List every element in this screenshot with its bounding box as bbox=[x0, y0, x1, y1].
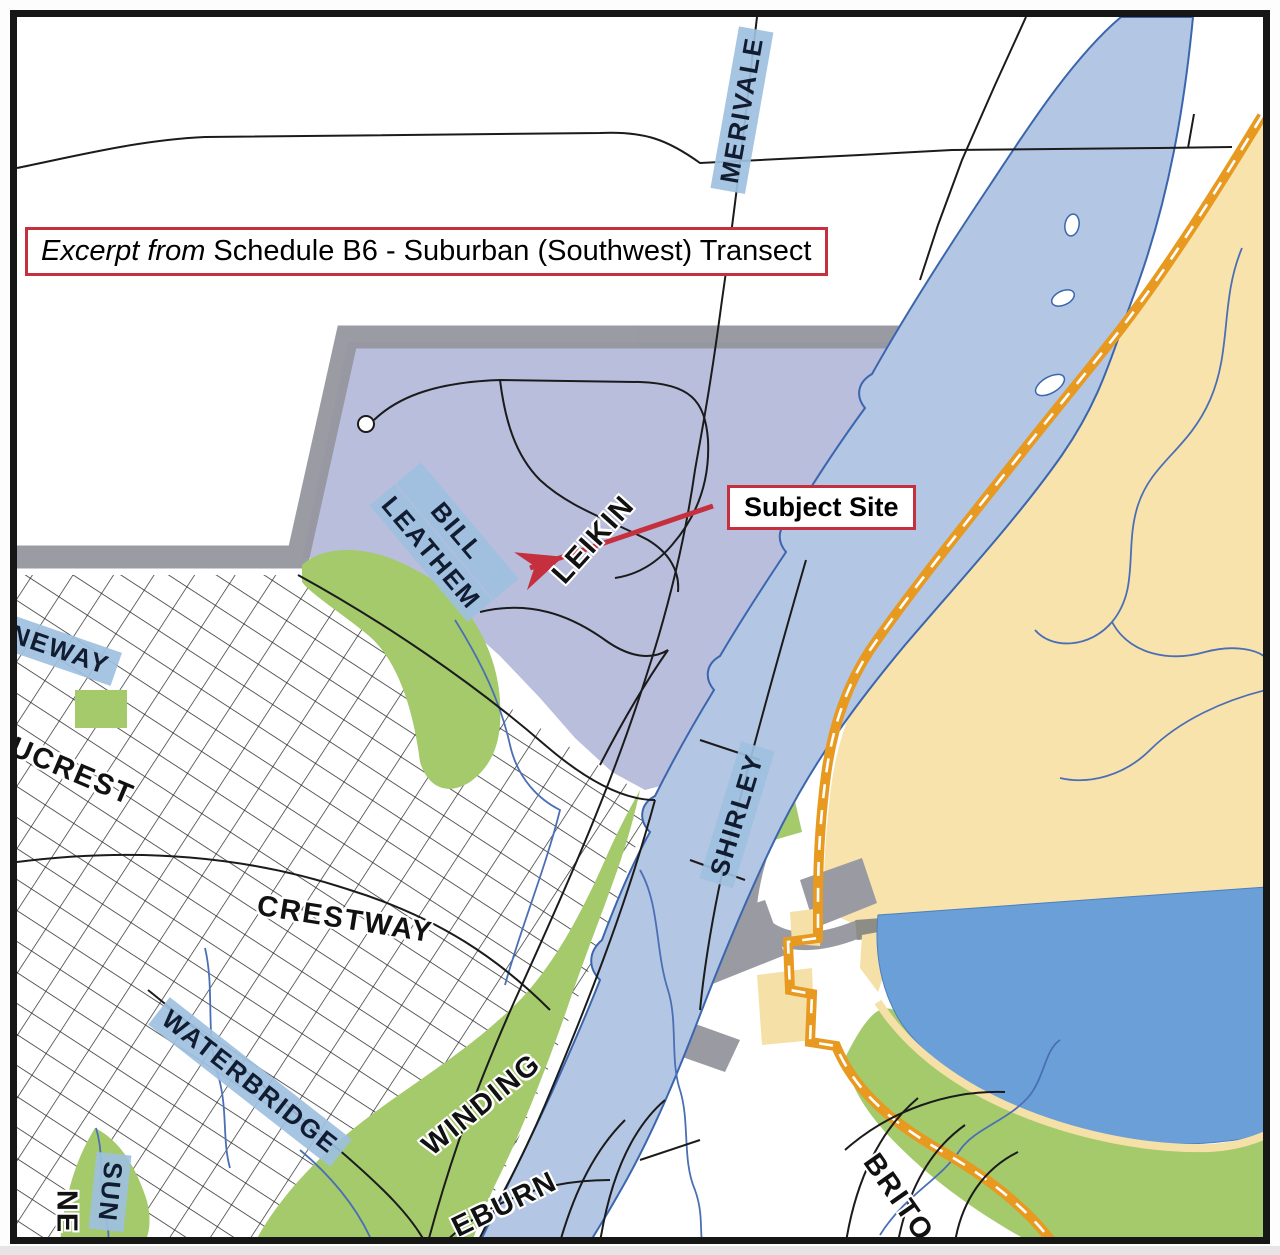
cul-de-sac bbox=[358, 416, 374, 432]
map-title-box: Excerpt from Schedule B6 - Suburban (Sou… bbox=[25, 227, 828, 276]
map-title-italic: Excerpt from bbox=[41, 235, 205, 267]
map-page: MERIVALE BILL LEATHEM LEIKIN SHIRLEY NEW… bbox=[0, 0, 1280, 1255]
map-canvas: MERIVALE BILL LEATHEM LEIKIN SHIRLEY NEW… bbox=[17, 17, 1263, 1237]
street-label-ne: NE bbox=[50, 1190, 83, 1234]
page-margin-strip bbox=[0, 1246, 1280, 1255]
subject-site-callout: Subject Site bbox=[727, 485, 916, 530]
map-title-text: Schedule B6 - Suburban (Southwest) Trans… bbox=[205, 235, 811, 267]
